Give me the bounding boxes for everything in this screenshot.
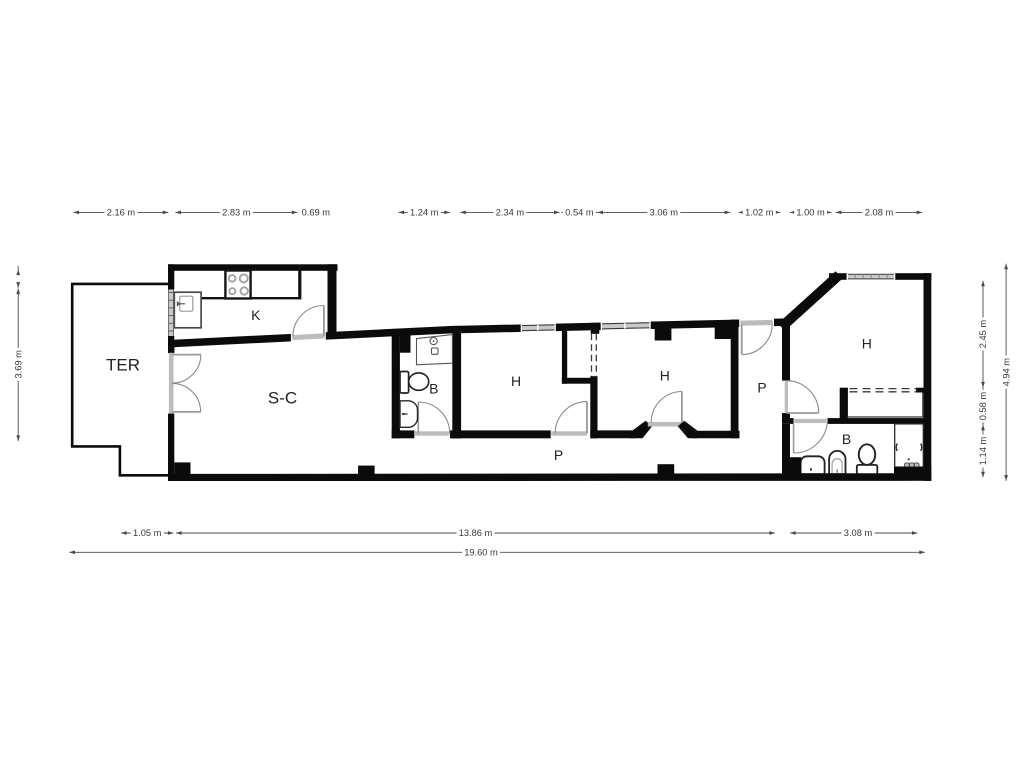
- svg-text:0.58 m: 0.58 m: [978, 392, 988, 421]
- svg-text:4.94 m: 4.94 m: [1001, 358, 1011, 387]
- svg-text:H: H: [660, 368, 670, 384]
- svg-text:H: H: [862, 336, 872, 352]
- svg-text:2.45 m: 2.45 m: [978, 320, 988, 349]
- svg-text:1.05 m: 1.05 m: [133, 528, 162, 538]
- svg-text:S-C: S-C: [268, 388, 297, 407]
- svg-text:3.08 m: 3.08 m: [844, 528, 873, 538]
- svg-text:P: P: [554, 447, 563, 463]
- svg-text:3.06 m: 3.06 m: [650, 208, 679, 218]
- svg-text:1.24 m: 1.24 m: [410, 208, 439, 218]
- svg-text:2.34 m: 2.34 m: [496, 208, 525, 218]
- svg-text:TER: TER: [106, 356, 140, 375]
- svg-text:K: K: [251, 307, 261, 323]
- svg-text:1.00 m: 1.00 m: [796, 208, 825, 218]
- svg-text:2.08 m: 2.08 m: [865, 208, 894, 218]
- svg-text:1.02 m: 1.02 m: [745, 208, 774, 218]
- svg-text:0.69 m: 0.69 m: [302, 208, 331, 218]
- svg-text:0.54 m: 0.54 m: [565, 208, 594, 218]
- svg-text:19.60 m: 19.60 m: [464, 548, 498, 558]
- svg-text:P: P: [757, 379, 766, 395]
- svg-text:3.69 m: 3.69 m: [13, 350, 23, 379]
- svg-text:B: B: [429, 380, 438, 396]
- svg-text:13.86 m: 13.86 m: [459, 528, 493, 538]
- svg-text:H: H: [511, 373, 521, 389]
- svg-text:B: B: [842, 431, 851, 447]
- svg-text:1.14 m: 1.14 m: [978, 437, 988, 466]
- svg-text:2.83 m: 2.83 m: [222, 208, 251, 218]
- svg-text:2.16 m: 2.16 m: [107, 208, 136, 218]
